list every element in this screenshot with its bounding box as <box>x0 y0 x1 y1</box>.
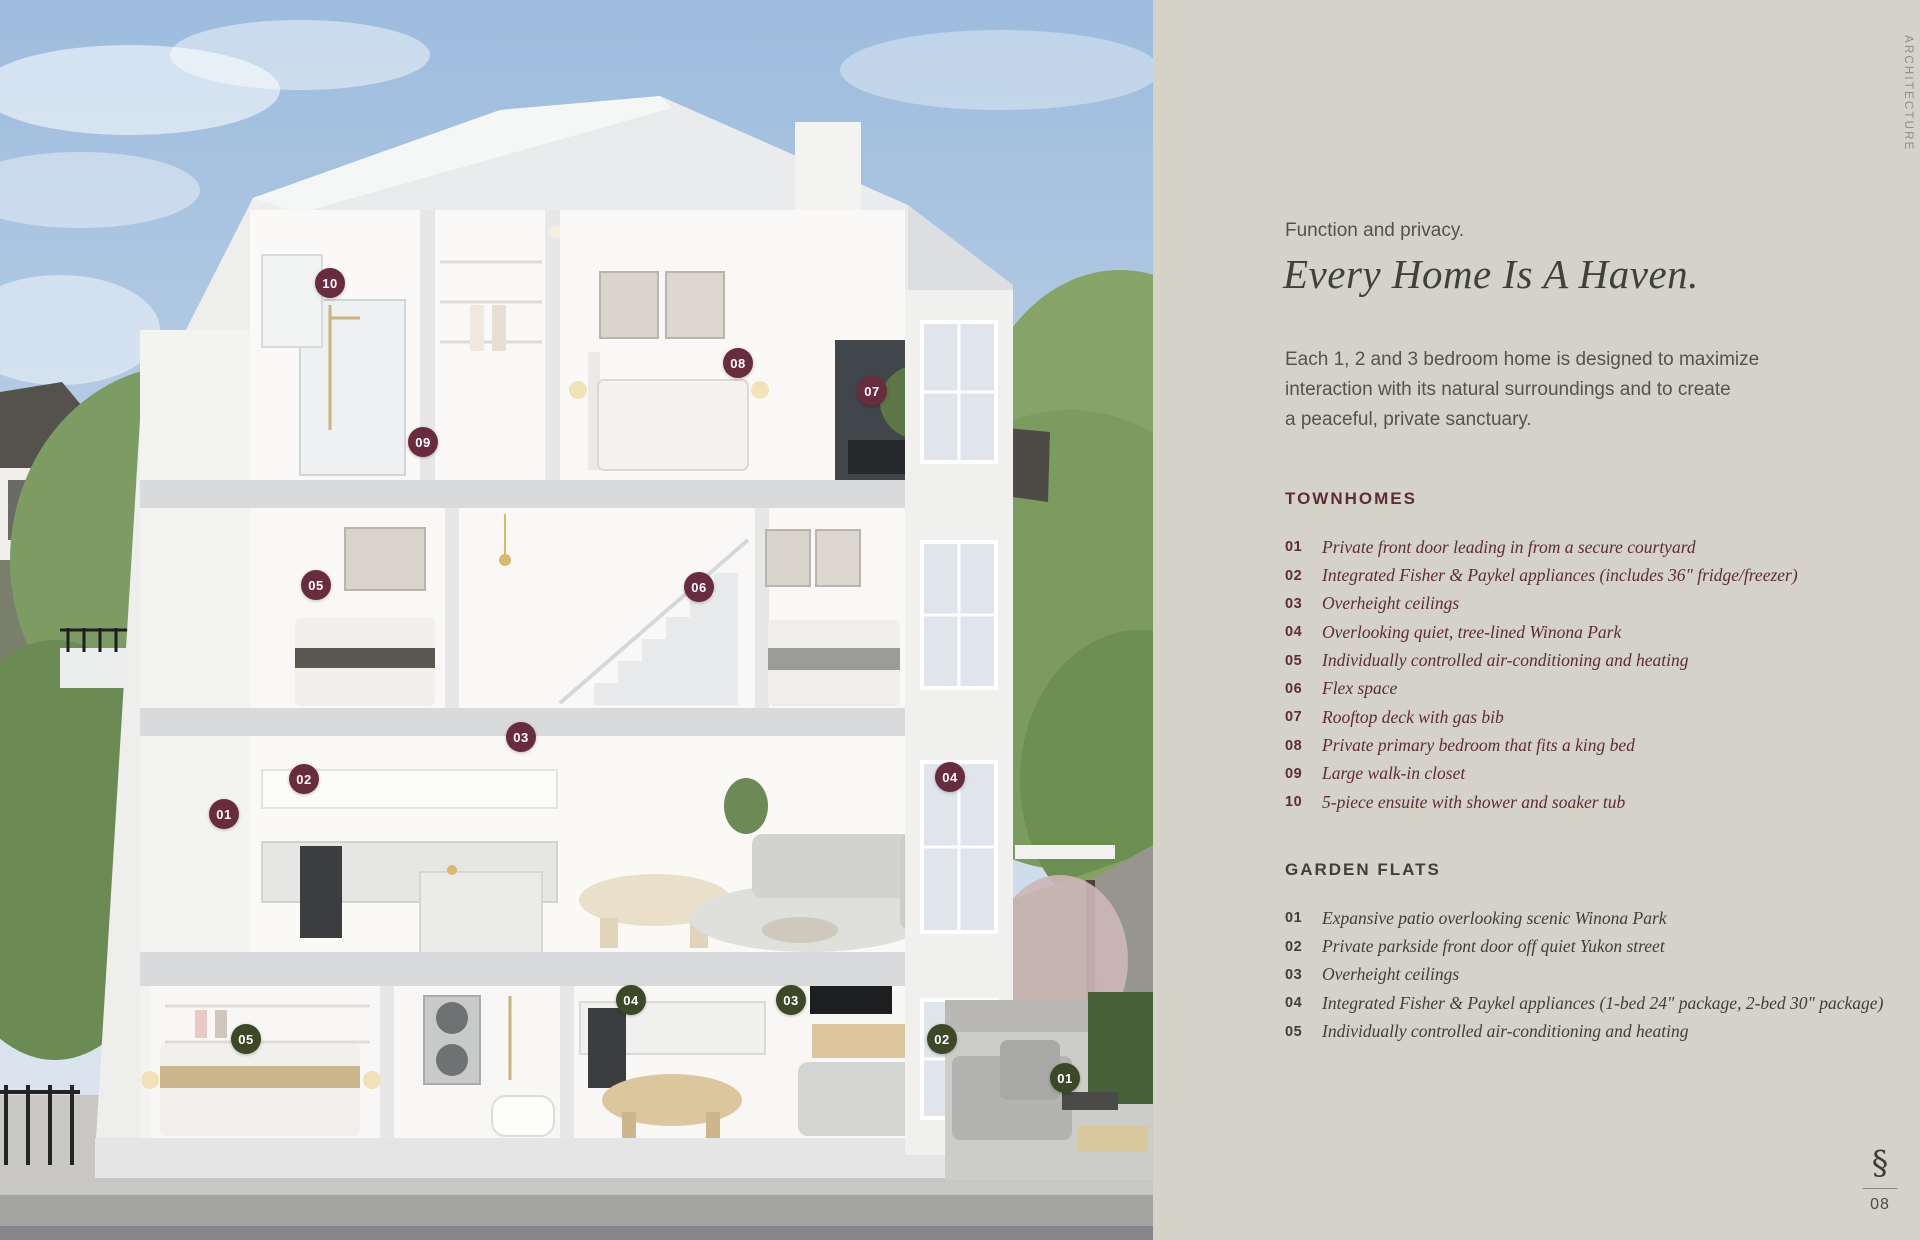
townhome-badge: 09 <box>408 427 438 457</box>
feature-item-text: 5-piece ensuite with shower and soaker t… <box>1322 792 1625 813</box>
feature-item: 06Flex space <box>1285 675 1798 703</box>
intro-line: interaction with its natural surrounding… <box>1285 375 1759 405</box>
feature-item-number: 03 <box>1285 596 1322 612</box>
eyebrow-text: Function and privacy. <box>1285 220 1464 242</box>
section-heading-townhomes: TOWNHOMES <box>1285 489 1798 509</box>
townhome-badge: 08 <box>723 348 753 378</box>
feature-item: 02Integrated Fisher & Paykel appliances … <box>1285 561 1798 589</box>
feature-item-number: 09 <box>1285 766 1322 782</box>
townhome-badge: 03 <box>506 722 536 752</box>
feature-item: 02Private parkside front door off quiet … <box>1285 932 1883 960</box>
page-title: Every Home Is A Haven. <box>1283 250 1699 298</box>
garden-flat-badge: 01 <box>1050 1063 1080 1093</box>
section-heading-garden-flats: GARDEN FLATS <box>1285 860 1883 880</box>
feature-item-text: Expansive patio overlooking scenic Winon… <box>1322 908 1667 929</box>
feature-item-number: 07 <box>1285 709 1322 725</box>
feature-item-number: 05 <box>1285 653 1322 669</box>
feature-item-number: 08 <box>1285 738 1322 754</box>
garden-flat-badge: 03 <box>776 985 806 1015</box>
feature-item-number: 04 <box>1285 624 1322 640</box>
feature-item: 01Expansive patio overlooking scenic Win… <box>1285 904 1883 932</box>
feature-item: 07Rooftop deck with gas bib <box>1285 703 1798 731</box>
feature-item-text: Overlooking quiet, tree-lined Winona Par… <box>1322 622 1621 643</box>
feature-item-text: Individually controlled air-conditioning… <box>1322 1021 1688 1042</box>
feature-item: 04Integrated Fisher & Paykel appliances … <box>1285 989 1883 1017</box>
feature-item-number: 06 <box>1285 681 1322 697</box>
section-garden-flats: GARDEN FLATS 01Expansive patio overlooki… <box>1285 860 1883 1046</box>
feature-item-number: 05 <box>1285 1024 1322 1040</box>
brochure-page: 010203040506070809100102030405 Function … <box>0 0 1920 1240</box>
feature-item: 03Overheight ceilings <box>1285 590 1798 618</box>
feature-item: 04Overlooking quiet, tree-lined Winona P… <box>1285 618 1798 646</box>
side-label-architecture: ARCHITECTURE <box>1902 35 1914 152</box>
garden-flat-badge: 04 <box>616 985 646 1015</box>
garden-flat-badge: 05 <box>231 1024 261 1054</box>
feature-item-number: 01 <box>1285 910 1322 926</box>
intro-paragraph: Each 1, 2 and 3 bedroom home is designed… <box>1285 345 1759 435</box>
intro-line: a peaceful, private sanctuary. <box>1285 405 1759 435</box>
feature-item: 05Individually controlled air-conditioni… <box>1285 1017 1883 1045</box>
feature-item-text: Private primary bedroom that fits a king… <box>1322 735 1635 756</box>
feature-item-text: Overheight ceilings <box>1322 964 1459 985</box>
feature-item-text: Integrated Fisher & Paykel appliances (1… <box>1322 993 1883 1014</box>
feature-item: 05Individually controlled air-conditioni… <box>1285 646 1798 674</box>
page-number: 08 <box>1854 1196 1906 1214</box>
feature-item-text: Rooftop deck with gas bib <box>1322 707 1504 728</box>
townhome-badge: 05 <box>301 570 331 600</box>
feature-item: 08Private primary bedroom that fits a ki… <box>1285 731 1798 759</box>
townhome-badge: 07 <box>857 376 887 406</box>
feature-item-text: Individually controlled air-conditioning… <box>1322 650 1688 671</box>
feature-item: 09Large walk-in closet <box>1285 760 1798 788</box>
building-cutaway <box>95 96 1013 1178</box>
garden-flats-feature-list: 01Expansive patio overlooking scenic Win… <box>1285 904 1883 1046</box>
feature-item-text: Private front door leading in from a sec… <box>1322 537 1696 558</box>
townhome-badge: 01 <box>209 799 239 829</box>
brand-logo: § <box>1854 1146 1906 1180</box>
garden-flat-badge: 02 <box>927 1024 957 1054</box>
footer-block: § 08 <box>1854 1146 1906 1214</box>
feature-item-number: 01 <box>1285 539 1322 555</box>
feature-item-text: Overheight ceilings <box>1322 593 1459 614</box>
townhome-badge: 04 <box>935 762 965 792</box>
townhome-badge: 02 <box>289 764 319 794</box>
townhome-badge: 06 <box>684 572 714 602</box>
feature-item: 105-piece ensuite with shower and soaker… <box>1285 788 1798 816</box>
cutaway-illustration <box>0 0 1153 1240</box>
townhome-badge: 10 <box>315 268 345 298</box>
feature-item: 01Private front door leading in from a s… <box>1285 533 1798 561</box>
footer-divider <box>1863 1188 1897 1189</box>
feature-item-text: Flex space <box>1322 678 1397 699</box>
feature-item-number: 02 <box>1285 568 1322 584</box>
section-townhomes: TOWNHOMES 01Private front door leading i… <box>1285 489 1798 816</box>
feature-item-number: 10 <box>1285 794 1322 810</box>
feature-item-number: 02 <box>1285 939 1322 955</box>
feature-item-text: Private parkside front door off quiet Yu… <box>1322 936 1665 957</box>
intro-line: Each 1, 2 and 3 bedroom home is designed… <box>1285 345 1759 375</box>
townhomes-feature-list: 01Private front door leading in from a s… <box>1285 533 1798 816</box>
feature-item: 03Overheight ceilings <box>1285 961 1883 989</box>
feature-item-text: Integrated Fisher & Paykel appliances (i… <box>1322 565 1798 586</box>
feature-item-number: 03 <box>1285 967 1322 983</box>
info-panel: Function and privacy. Every Home Is A Ha… <box>1153 0 1920 1240</box>
feature-item-text: Large walk-in closet <box>1322 763 1465 784</box>
feature-item-number: 04 <box>1285 995 1322 1011</box>
patio <box>945 992 1153 1180</box>
building-cutaway-photo: 010203040506070809100102030405 <box>0 0 1153 1240</box>
